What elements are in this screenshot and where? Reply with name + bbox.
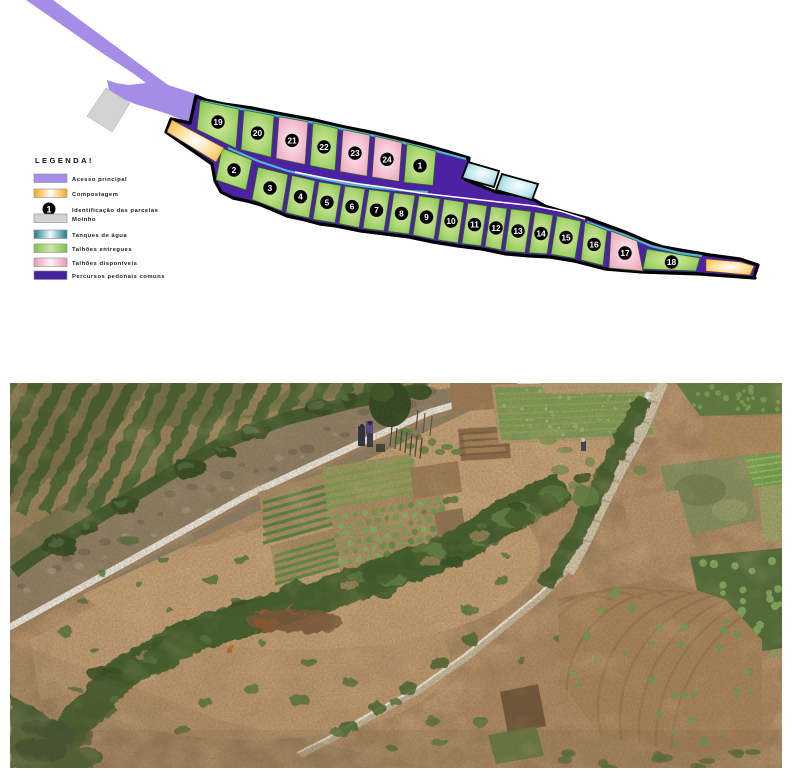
svg-text:Percursos pedonais comuns: Percursos pedonais comuns xyxy=(72,274,165,280)
svg-text:4: 4 xyxy=(298,192,303,202)
svg-text:14: 14 xyxy=(536,229,546,239)
svg-text:Acesso principal: Acesso principal xyxy=(72,177,127,183)
svg-text:Compostagem: Compostagem xyxy=(72,192,118,198)
svg-text:17: 17 xyxy=(620,248,630,258)
svg-text:3: 3 xyxy=(268,183,273,193)
svg-text:20: 20 xyxy=(253,128,263,138)
svg-text:24: 24 xyxy=(382,154,392,164)
svg-text:Moinho: Moinho xyxy=(72,217,96,223)
svg-text:6: 6 xyxy=(350,202,355,212)
svg-text:21: 21 xyxy=(287,135,297,145)
svg-text:23: 23 xyxy=(350,148,360,158)
svg-text:9: 9 xyxy=(424,212,429,222)
svg-text:1: 1 xyxy=(418,161,423,171)
svg-text:15: 15 xyxy=(561,232,571,242)
svg-text:LEGENDA!: LEGENDA! xyxy=(35,156,94,165)
svg-text:13: 13 xyxy=(513,226,523,236)
svg-text:7: 7 xyxy=(374,205,379,215)
svg-text:12: 12 xyxy=(491,223,501,233)
svg-text:22: 22 xyxy=(319,142,329,152)
svg-text:Talhões disponíveis: Talhões disponíveis xyxy=(72,261,138,267)
svg-text:2: 2 xyxy=(232,165,237,175)
svg-text:Tanques de água: Tanques de água xyxy=(72,233,127,239)
svg-text:5: 5 xyxy=(325,197,330,207)
svg-text:11: 11 xyxy=(470,220,479,230)
svg-text:8: 8 xyxy=(399,208,404,218)
svg-text:Talhões entregues: Talhões entregues xyxy=(72,247,132,253)
svg-text:18: 18 xyxy=(667,257,677,267)
svg-text:10: 10 xyxy=(446,216,456,226)
svg-text:19: 19 xyxy=(213,117,223,127)
svg-text:Identificação das parcelas: Identificação das parcelas xyxy=(72,208,159,214)
svg-text:16: 16 xyxy=(589,239,599,249)
svg-text:1: 1 xyxy=(46,205,51,215)
